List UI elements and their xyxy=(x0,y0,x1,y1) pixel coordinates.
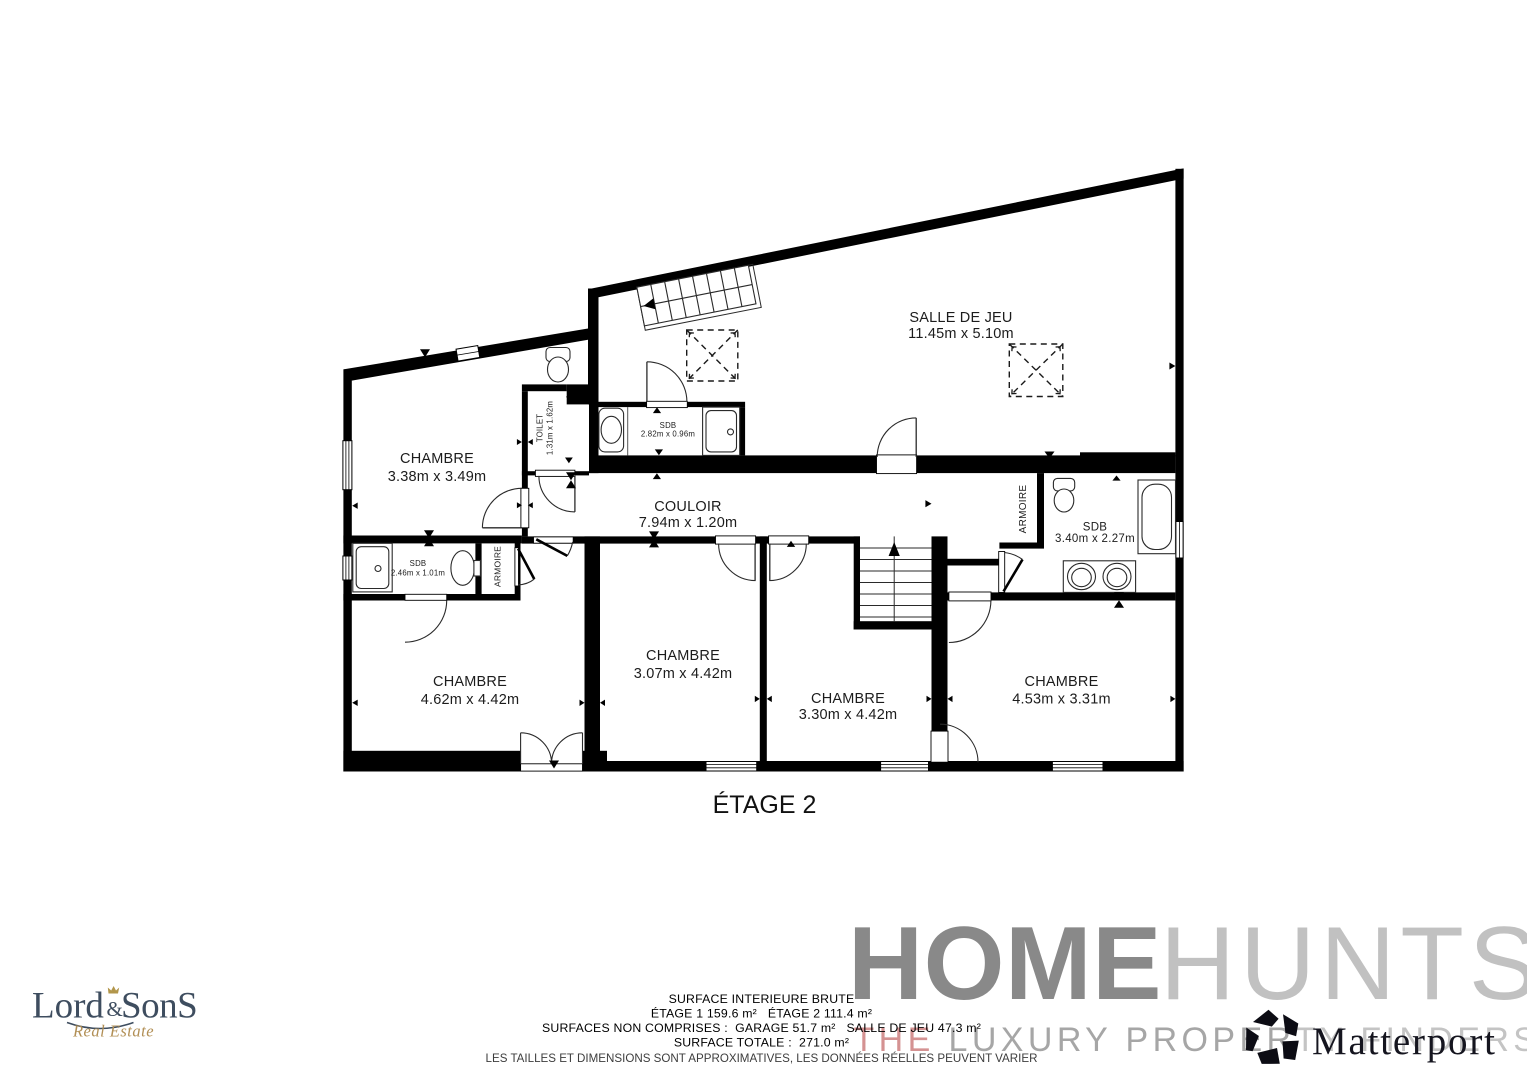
svg-text:SDB: SDB xyxy=(410,559,427,568)
svg-text:2.82m x 0.96m: 2.82m x 0.96m xyxy=(641,430,695,439)
svg-text:COULOIR: COULOIR xyxy=(654,499,721,515)
svg-text:CHAMBRE: CHAMBRE xyxy=(646,648,720,664)
svg-text:ARMOIRE: ARMOIRE xyxy=(1018,485,1029,534)
svg-text:Matterport: Matterport xyxy=(1312,1020,1497,1063)
svg-text:CHAMBRE: CHAMBRE xyxy=(433,674,507,690)
svg-text:CHAMBRE: CHAMBRE xyxy=(400,451,474,467)
svg-text:3.07m x 4.42m: 3.07m x 4.42m xyxy=(634,666,733,682)
svg-text:TOILET: TOILET xyxy=(536,414,545,442)
svg-text:Real Estate: Real Estate xyxy=(72,1022,154,1041)
svg-text:3.38m x 3.49m: 3.38m x 3.49m xyxy=(388,469,487,485)
svg-text:4.53m x 3.31m: 4.53m x 3.31m xyxy=(1012,692,1111,708)
svg-text:Lord: Lord xyxy=(32,985,104,1026)
svg-text:CHAMBRE: CHAMBRE xyxy=(1025,674,1099,690)
svg-text:2.46m x 1.01m: 2.46m x 1.01m xyxy=(391,569,445,578)
svg-text:LES TAILLES ET DIMENSIONS SONT: LES TAILLES ET DIMENSIONS SONT APPROXIMA… xyxy=(486,1052,1038,1065)
svg-text:ÉTAGE 1 159.6 m² ÉTAGE 2 111: ÉTAGE 1 159.6 m² ÉTAGE 2 111.4 m² xyxy=(651,1006,872,1021)
svg-text:SonS: SonS xyxy=(121,985,197,1026)
svg-text:SDB: SDB xyxy=(1083,522,1108,534)
svg-text:3.40m x 2.27m: 3.40m x 2.27m xyxy=(1055,533,1135,545)
svg-text:4.62m x 4.42m: 4.62m x 4.42m xyxy=(421,692,520,708)
svg-text:CHAMBRE: CHAMBRE xyxy=(811,691,885,707)
svg-text:1.31m x 1.62m: 1.31m x 1.62m xyxy=(546,401,555,455)
svg-text:ARMOIRE: ARMOIRE xyxy=(493,546,503,587)
svg-text:SALLE DE JEU: SALLE DE JEU xyxy=(909,310,1012,326)
svg-text:ÉTAGE 2: ÉTAGE 2 xyxy=(713,790,817,819)
svg-text:7.94m x 1.20m: 7.94m x 1.20m xyxy=(639,515,738,531)
svg-text:HOMEHUNTS: HOMEHUNTS xyxy=(848,906,1527,1022)
svg-text:11.45m x 5.10m: 11.45m x 5.10m xyxy=(908,326,1014,342)
svg-text:SURFACES NON COMPRISES : GARA: SURFACES NON COMPRISES : GARAGE 51.7 m² … xyxy=(542,1021,981,1035)
svg-text:SURFACE INTERIEURE BRUTE: SURFACE INTERIEURE BRUTE xyxy=(669,992,855,1006)
svg-text:SURFACE TOTALE : 271.0 m²: SURFACE TOTALE : 271.0 m² xyxy=(674,1036,849,1050)
svg-text:3.30m x 4.42m: 3.30m x 4.42m xyxy=(799,707,898,723)
